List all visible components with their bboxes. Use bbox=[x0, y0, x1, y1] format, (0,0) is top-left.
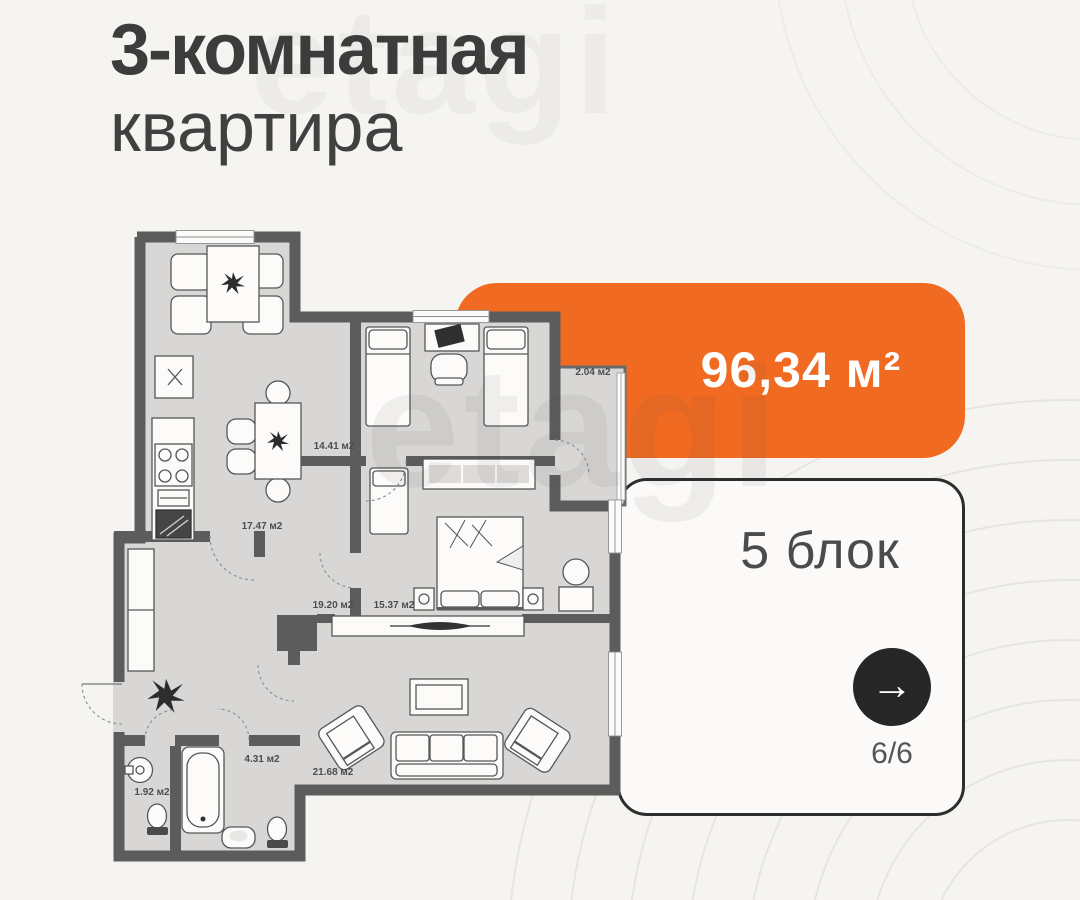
pillow bbox=[487, 330, 525, 349]
desk-chair-back bbox=[435, 378, 463, 385]
pillow bbox=[373, 471, 405, 486]
room-label-balcony: 2.04 м2 bbox=[575, 367, 611, 378]
kitchen-chair bbox=[266, 478, 290, 502]
kitchen-chair bbox=[266, 381, 290, 405]
tap bbox=[125, 766, 133, 774]
chair bbox=[563, 559, 589, 585]
title-line-2: квартира bbox=[110, 92, 528, 162]
dining-chair bbox=[171, 296, 211, 334]
room-label-living-room: 21.68 м2 bbox=[313, 767, 354, 778]
block-card: 5 блок → 6/6 bbox=[617, 478, 965, 816]
nightstand bbox=[523, 588, 543, 610]
nightstand bbox=[414, 588, 434, 610]
room-label-kitchen: 17.47 м2 bbox=[242, 521, 283, 532]
pagination-label: 6/6 bbox=[853, 737, 931, 771]
vent-shaft bbox=[155, 356, 193, 398]
next-button[interactable]: → bbox=[853, 648, 931, 726]
floor-plan: 14.41 м2 17.47 м2 19.20 м2 15.37 м2 21.6… bbox=[70, 228, 630, 878]
side-table bbox=[559, 587, 593, 611]
entry-door-gap bbox=[113, 682, 125, 732]
total-area-value: 96,34 м² bbox=[701, 341, 902, 399]
pillow bbox=[441, 591, 479, 607]
block-label: 5 блок bbox=[620, 521, 962, 581]
room-label-bedroom-1: 14.41 м2 bbox=[314, 441, 355, 452]
page-title: 3-комнатная квартира bbox=[110, 14, 528, 162]
pillow bbox=[369, 330, 407, 349]
room-label-bedroom-2: 15.37 м2 bbox=[374, 600, 415, 611]
pillow bbox=[481, 591, 519, 607]
toilet bbox=[148, 804, 167, 828]
room-label-bathroom: 4.31 м2 bbox=[244, 754, 280, 765]
kitchen-chair bbox=[227, 419, 256, 444]
balcony bbox=[557, 367, 625, 505]
room-label-hallway: 19.20 м2 bbox=[313, 600, 354, 611]
title-line-1: 3-комнатная bbox=[110, 14, 528, 86]
arrow-right-icon: → bbox=[871, 664, 913, 706]
toilet bbox=[268, 817, 287, 841]
kitchen-chair bbox=[227, 449, 256, 474]
dining-chair bbox=[171, 254, 211, 290]
room-label-toilet: 1.92 м2 bbox=[134, 787, 170, 798]
